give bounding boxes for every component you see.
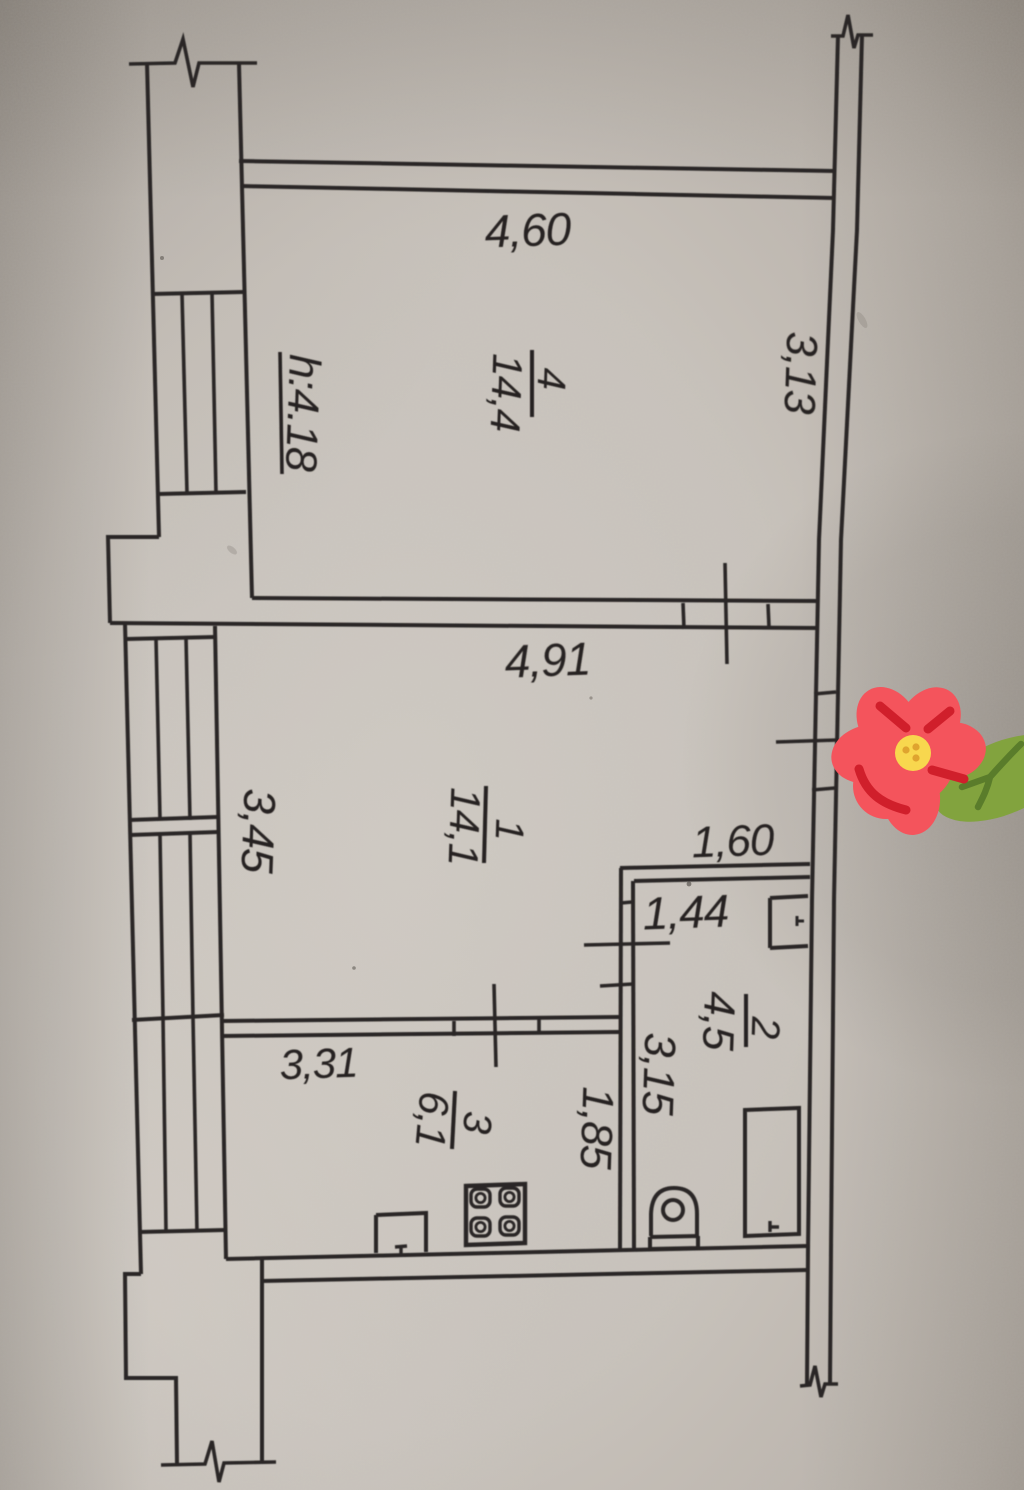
svg-text:4,91: 4,91 (504, 633, 591, 688)
svg-text:h:4.18: h:4.18 (276, 354, 329, 473)
svg-text:1,85: 1,85 (571, 1086, 623, 1171)
svg-text:1,60: 1,60 (691, 816, 776, 868)
svg-text:3,13: 3,13 (775, 331, 827, 416)
svg-text:3,45: 3,45 (231, 788, 285, 875)
svg-text:3,15: 3,15 (633, 1032, 685, 1117)
svg-text:4: 4 (529, 367, 574, 390)
svg-text:4,60: 4,60 (484, 202, 573, 257)
svg-text:2: 2 (743, 1015, 788, 1040)
svg-text:3,31: 3,31 (279, 1039, 358, 1089)
svg-text:14,1: 14,1 (440, 787, 490, 866)
svg-text:1,44: 1,44 (642, 885, 729, 940)
svg-text:4,5: 4,5 (693, 991, 744, 1052)
svg-text:1: 1 (487, 818, 532, 841)
svg-text:14,4: 14,4 (482, 353, 532, 432)
